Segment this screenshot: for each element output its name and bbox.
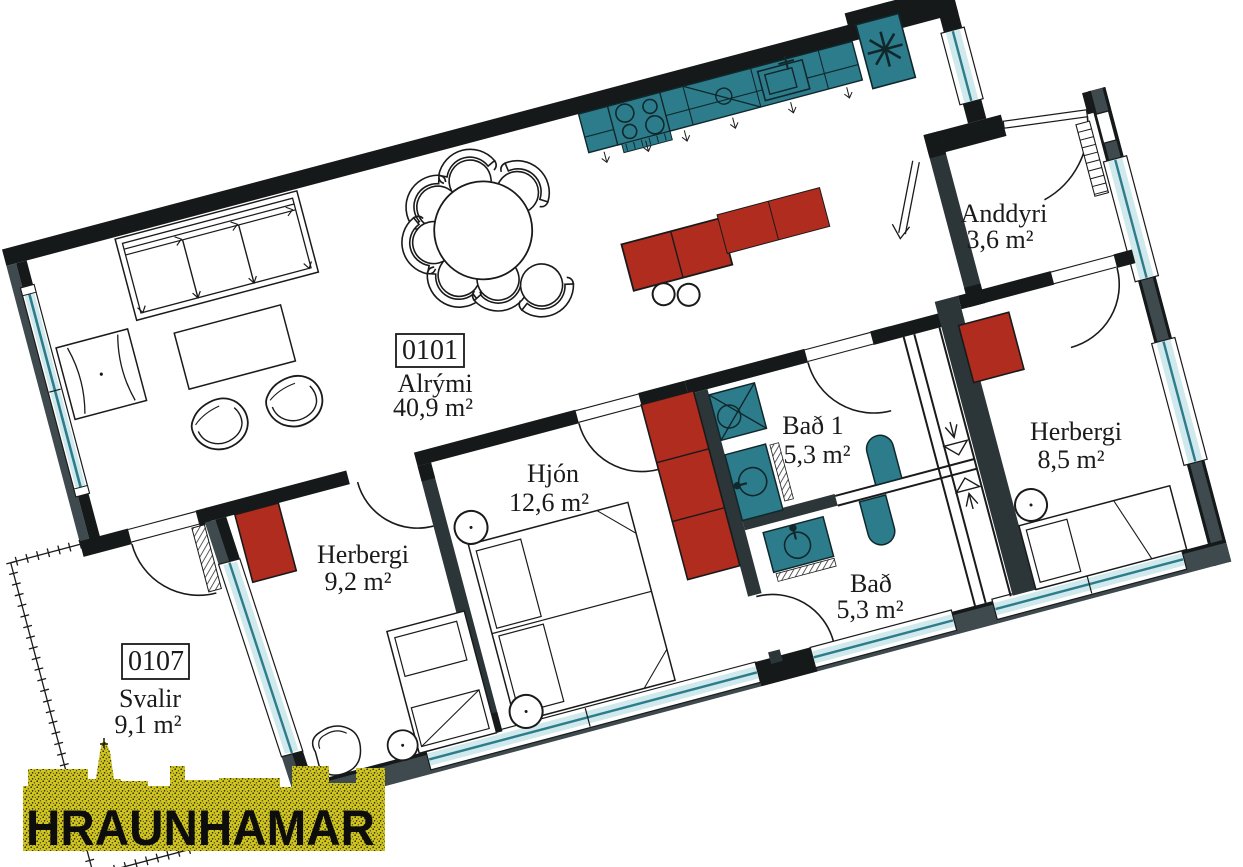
svg-text:0101: 0101: [402, 335, 458, 366]
svg-text:9,2 m²: 9,2 m²: [324, 567, 391, 596]
svg-text:5,3 m²: 5,3 m²: [783, 440, 850, 469]
svg-text:Bað: Bað: [850, 569, 892, 598]
svg-text:12,6 m²: 12,6 m²: [509, 488, 589, 517]
svg-text:5,3 m²: 5,3 m²: [836, 595, 903, 624]
svg-text:8,5 m²: 8,5 m²: [1037, 445, 1104, 474]
svg-text:HRAUNHAMAR: HRAUNHAMAR: [26, 800, 375, 856]
svg-text:3,6 m²: 3,6 m²: [966, 225, 1033, 254]
svg-text:40,9 m²: 40,9 m²: [393, 393, 473, 422]
svg-text:0107: 0107: [128, 646, 184, 677]
svg-text:Hjón: Hjón: [527, 459, 579, 488]
svg-text:9,1 m²: 9,1 m²: [114, 710, 181, 739]
svg-text:Herbergi: Herbergi: [1030, 417, 1122, 446]
svg-text:Svalir: Svalir: [119, 684, 181, 713]
svg-text:Bað 1: Bað 1: [782, 411, 843, 440]
svg-text:Anddyri: Anddyri: [961, 199, 1048, 228]
svg-text:Herbergi: Herbergi: [317, 540, 409, 569]
